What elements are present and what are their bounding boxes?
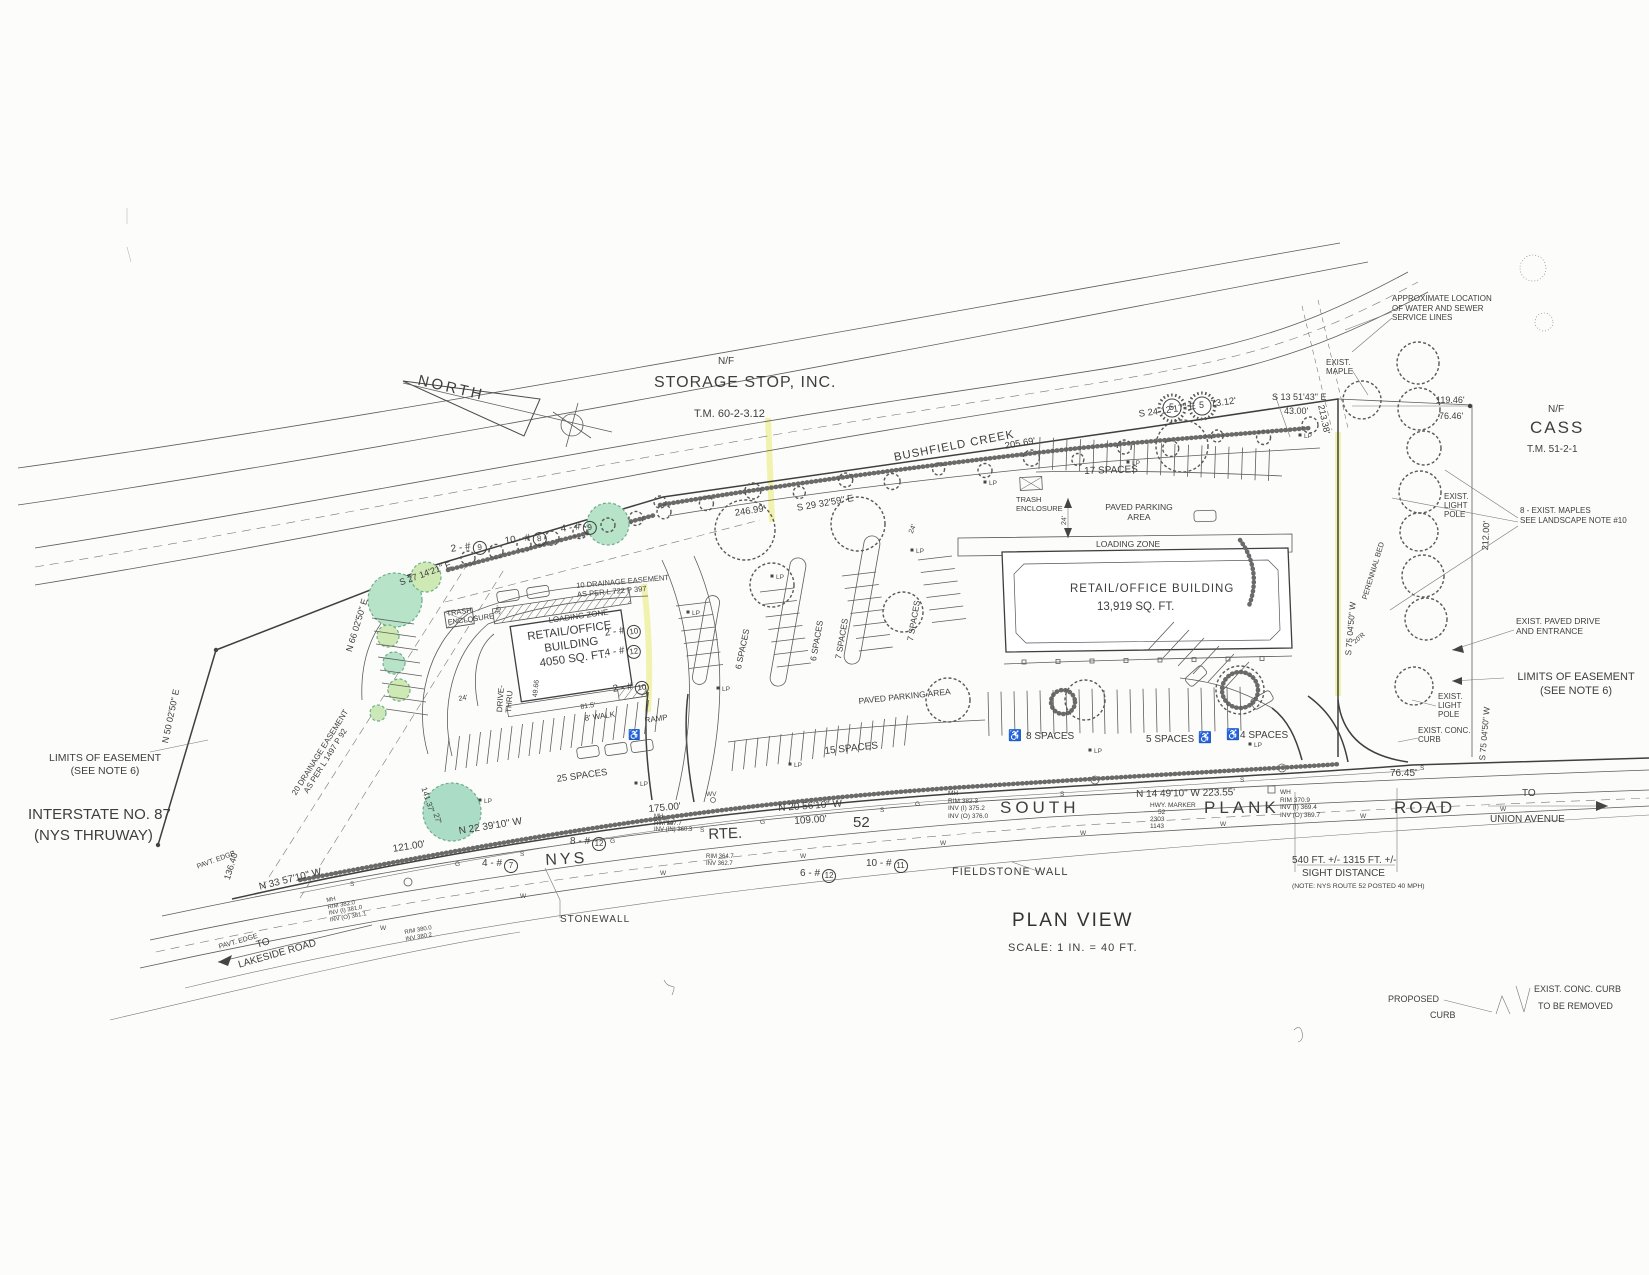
plant-num: 12 (592, 837, 606, 851)
creek-shrub (978, 464, 992, 478)
creek-shrub (1163, 441, 1179, 457)
note-line: (NOTE: NYS ROUTE 52 POSTED 40 MPH) (1292, 880, 1425, 893)
dim-7645: 76.45' (1390, 768, 1417, 779)
thruway-lines (18, 208, 1368, 505)
stonewall-label: STONEWALL (560, 914, 630, 925)
hwy-marker-note: HWY. MARKER 52 2303 1143 (1150, 802, 1196, 830)
sewer-line-marker: S (520, 851, 525, 858)
parking-stall-ticks (760, 588, 811, 667)
limits-easement-right: LIMITS OF EASEMENT (SEE NOTE 6) (1506, 670, 1646, 698)
dim-43: 43.00' (1284, 406, 1308, 416)
light-pole-icon (1089, 749, 1092, 752)
to-union-avenue: UNION AVENUE (1490, 814, 1565, 825)
plant-qty: 4 - # (560, 521, 581, 535)
boundary-shrub (657, 505, 671, 519)
car-outline (630, 739, 653, 753)
canopy-post (1124, 659, 1128, 663)
note-line: INV (IN) 360.3 (654, 827, 692, 834)
note-line: SERVICE LINES (1392, 313, 1492, 323)
water-line-marker: W (380, 925, 387, 932)
gas-line-marker: G (610, 838, 615, 845)
road-label-nys: NYS (545, 850, 588, 870)
wh-data: WH RIM 370.9 INV (I) 369.4 INV (O) 369.7 (1280, 789, 1320, 819)
plant-num: 9 (472, 540, 488, 556)
plant-num: 9 (582, 520, 598, 536)
handicap-icon-b: ♿ (1198, 731, 1212, 744)
note-line: INV (O) 369.7 (1280, 812, 1320, 820)
parking-stall-ticks (445, 698, 659, 772)
note-line: LIMITS OF EASEMENT (1506, 670, 1646, 684)
lp-marker: LP (1094, 748, 1102, 755)
note-line: MAPLE (1326, 367, 1353, 376)
note-line: MH (948, 790, 988, 798)
plant-qty: 2 - # (450, 541, 471, 555)
water-line-marker: W (1500, 806, 1507, 813)
parking-stall-ticks (1188, 687, 1241, 732)
handicap-icon-d: ♿ (628, 730, 640, 741)
wv-marker: WV (706, 791, 717, 798)
storage-stop-tm: T.M. 60-2-3.12 (694, 408, 765, 420)
note-line: EXIST. (1326, 358, 1353, 367)
note-line: EXIST. (1438, 692, 1462, 701)
car-outline (1184, 665, 1208, 688)
exist-light-pole-note-2: EXIST. LIGHT POLE (1438, 692, 1462, 719)
plant-num: 7 (504, 859, 518, 873)
note-line: AND ENTRANCE (1516, 626, 1600, 636)
plant-qty: 2 - # (604, 625, 625, 639)
road-label-road: ROAD (1394, 798, 1455, 818)
exist-paved-drive-note: EXIST. PAVED DRIVE AND ENTRANCE (1516, 616, 1600, 636)
gas-line-marker: G (760, 819, 765, 826)
note-line: LIMITS OF EASEMENT (40, 752, 170, 765)
trash-enclosure-east: TRASH ENCLOSURE (1016, 496, 1063, 513)
note-line: EXIST. CONC. (1418, 726, 1470, 735)
sight-distance-note: 540 FT. +/- 1315 FT. +/- SIGHT DISTANCE … (1292, 854, 1425, 893)
plant-callout-6-12: 6 - #12 (800, 868, 836, 883)
note-line: INV 362.7 (706, 861, 734, 868)
road-label-rte: RTE. (708, 825, 742, 843)
to-union-to: TO (1522, 788, 1536, 799)
plant-callout-8-12: 8 - #12 (570, 836, 606, 851)
plant-qty: 6 - # (800, 868, 820, 879)
lp-marker: LP (722, 686, 730, 693)
note-line: (NYS THRUWAY) (28, 825, 171, 846)
note-line: 540 FT. +/- 1315 FT. +/- (1292, 854, 1425, 867)
tree-tag-5-a: 5 (1169, 402, 1174, 412)
lp-marker: LP (484, 798, 492, 805)
parking-stall-ticks (732, 716, 908, 772)
mh-data-b: MH RIM 367.7 INV (IN) 360.3 (654, 814, 692, 834)
water-line-marker: W (940, 840, 947, 847)
exist-light-pole-note-1: EXIST. LIGHT POLE (1444, 492, 1468, 519)
light-pole-icon (911, 549, 914, 552)
storage-stop-name: STORAGE STOP, INC. (654, 374, 837, 392)
plan-view-scale: SCALE: 1 IN. = 40 FT. (1008, 942, 1138, 954)
bearing-s13: S 13 51'43" E (1272, 392, 1326, 402)
car-outline (604, 742, 627, 756)
car-outline (576, 745, 599, 759)
lp-marker: LP (776, 574, 784, 581)
gas-line-marker: G (455, 861, 460, 868)
plant-num: 10 (626, 624, 642, 640)
mh-data-middle: MH RIM 382.3 INV (I) 375.2 INV (O) 376.0 (948, 790, 988, 820)
sewer-line-marker: S (1240, 777, 1245, 784)
road-label-plank: PLANK (1204, 798, 1280, 818)
light-pole-icon (1127, 461, 1130, 464)
spaces-5: 5 SPACES (1146, 734, 1194, 745)
sewer-line-marker: S (880, 807, 885, 814)
note-line: (SEE NOTE 6) (40, 765, 170, 778)
dim-11946: 119.46' (1436, 395, 1465, 405)
plant-num: 12 (822, 869, 836, 883)
note-line: POLE (1438, 710, 1462, 719)
note-line: EXIST. (1444, 492, 1468, 501)
exist-maple-note: EXIST. MAPLE (1326, 358, 1353, 376)
note-line: 8 - EXIST. MAPLES (1520, 506, 1627, 516)
note-line: WH (1280, 789, 1320, 797)
lp-marker: LP (692, 610, 700, 617)
plant-qty: 10 - # (866, 858, 892, 869)
interstate-label: INTERSTATE NO. 87 (NYS THRUWAY) (28, 804, 171, 846)
parking-stall-ticks (842, 572, 893, 651)
note-line: 52 (1150, 809, 1196, 816)
note-line: OF WATER AND SEWER (1392, 304, 1492, 314)
fieldstone-wall-label: FIELDSTONE WALL (952, 866, 1068, 878)
plant-qty: 8 - # (570, 836, 590, 847)
site-plan-sheet: LPLPLPLPLPLPLPLPLPLPLPLPWWWWWWWWWSSSSSSS… (0, 0, 1649, 1275)
note-line: LIGHT (1438, 701, 1462, 710)
road-label-52: 52 (853, 814, 870, 831)
cass-nf: N/F (1548, 404, 1564, 415)
legend-proposed: PROPOSED (1388, 994, 1439, 1004)
lp-marker: LP (1304, 433, 1312, 440)
water-line-marker: W (1080, 830, 1087, 837)
canopy-post (1158, 658, 1162, 662)
exist-conc-curb-note: EXIST. CONC. CURB (1418, 726, 1470, 744)
plant-qty: 4 - # (604, 645, 625, 659)
creek-shrub (884, 474, 900, 490)
dim-109: 109.00' (794, 814, 827, 827)
note-line: POLE (1444, 510, 1468, 519)
plant-callout-10-11: 10 - #11 (866, 858, 908, 873)
bushfield-creek (35, 272, 1428, 585)
water-line-marker: W (520, 893, 527, 900)
plant-qty: 2 - # (612, 681, 633, 695)
plant-callout-4-7: 4 - #7 (482, 858, 518, 873)
parking-stall-ticks (918, 556, 966, 623)
sewer-line-marker: S (350, 881, 355, 888)
parking-stall-ticks (1104, 688, 1170, 734)
water-line-marker: W (660, 870, 667, 877)
note-line: LIGHT (1444, 501, 1468, 510)
water-line-marker: W (800, 853, 807, 860)
note-line: AREA (1104, 513, 1174, 523)
lp-marker: LP (640, 781, 648, 788)
gas-line-marker: G (915, 801, 920, 808)
note-line: INV (I) 375.2 (948, 805, 988, 813)
handicap-icon-c: ♿ (1226, 728, 1240, 741)
car-outline (526, 585, 549, 599)
tree-tag-5-b: 5 (1199, 400, 1204, 410)
note-line: 2303 (1150, 816, 1196, 823)
light-pole-icon (1299, 434, 1302, 437)
plant-qty: 10 - # (504, 532, 531, 546)
note-line: INV (O) 376.0 (948, 813, 988, 821)
light-pole-icon (984, 481, 987, 484)
handicap-icon-a: ♿ (1008, 729, 1022, 742)
sewer-line-marker: S (1060, 791, 1065, 798)
water-line-marker: W (1360, 813, 1367, 820)
note-line: RIM 370.9 (1280, 797, 1320, 805)
paved-parking-east: PAVED PARKING AREA (1104, 503, 1174, 522)
legend-proposed-curb: CURB (1430, 1010, 1456, 1020)
note-line: SEE LANDSCAPE NOTE #10 (1520, 516, 1627, 526)
dim-7646: 76.46' (1439, 411, 1463, 421)
site-plan-linework: LPLPLPLPLPLPLPLPLPLPLPLPWWWWWWWWWSSSSSSS… (0, 0, 1649, 1275)
plan-view-title: PLAN VIEW (1012, 910, 1133, 932)
lp-marker: LP (989, 480, 997, 487)
lp-marker: LP (794, 762, 802, 769)
light-pole-icon (1249, 743, 1252, 746)
note-line: INV (I) 369.4 (1280, 804, 1320, 812)
note-line: RIM 364.7 (706, 854, 734, 861)
maples-note: 8 - EXIST. MAPLES SEE LANDSCAPE NOTE #10 (1520, 506, 1627, 526)
east-building-area: 13,919 SQ. FT. (1097, 601, 1174, 613)
cass-tm: T.M. 51-2-1 (1527, 444, 1578, 455)
car-outline (1194, 510, 1216, 522)
entrance-curbs (646, 692, 1408, 802)
spaces-4: 4 SPACES (1240, 730, 1288, 741)
drive-thru-label: DRIVE- THRU (496, 685, 515, 713)
cass-name: CASS (1530, 418, 1584, 438)
light-pole-icon (635, 782, 638, 785)
approx-water-sewer-note: APPROXIMATE LOCATION OF WATER AND SEWER … (1392, 294, 1492, 323)
note-line: APPROXIMATE LOCATION (1392, 294, 1492, 304)
light-pole-icon (717, 687, 720, 690)
note-line: (SEE NOTE 6) (1506, 684, 1646, 698)
water-line-marker: W (1220, 821, 1227, 828)
note-line: INTERSTATE NO. 87 (28, 804, 171, 825)
canopy-post (1260, 657, 1264, 661)
note-line: ENCLOSURE (1016, 505, 1063, 514)
lp-marker: LP (916, 548, 924, 555)
loading-zone-east: LOADING ZONE (1096, 539, 1160, 549)
rim-data-b: RIM 364.7 INV 362.7 (706, 854, 734, 867)
spaces-8: 8 SPACES (1026, 731, 1074, 742)
storage-stop-nf: N/F (718, 356, 734, 367)
canopy-post (1056, 660, 1060, 664)
note-line: CURB (1418, 735, 1470, 744)
note-line: SIGHT DISTANCE (1292, 867, 1425, 880)
note-line: 1143 (1150, 823, 1196, 830)
dim-21200: 212.00' (1480, 521, 1492, 551)
plant-qty: 4 - # (482, 858, 502, 869)
legend-exist-curb: EXIST. CONC. CURB (1534, 984, 1621, 994)
parking-stall-ticks (988, 689, 1093, 736)
plant-num: 11 (894, 859, 908, 873)
light-pole-icon (479, 799, 482, 802)
legend-exist-curb-removed: TO BE REMOVED (1538, 1001, 1613, 1011)
sewer-line-marker: S (1420, 765, 1425, 772)
plant-num: 12 (626, 644, 642, 660)
dim-24-c: 24' (1061, 516, 1068, 525)
plant-num: 10 (634, 680, 650, 696)
sewer-line-marker: S (700, 827, 705, 834)
light-pole-icon (771, 575, 774, 578)
spaces-17: 17 SPACES (1084, 464, 1138, 477)
plant-num: 8 (531, 531, 547, 547)
light-pole-icon (789, 763, 792, 766)
light-pole-icon (687, 611, 690, 614)
note-line: HWY. MARKER (1150, 802, 1196, 809)
note-line: RIM 382.3 (948, 798, 988, 806)
bearing-n14: N 14 49'10" W 223.55' (1136, 787, 1235, 800)
road-label-south: SOUTH (1000, 798, 1080, 818)
note-line: EXIST. PAVED DRIVE (1516, 616, 1600, 626)
car-outline (496, 589, 519, 603)
east-building-name: RETAIL/OFFICE BUILDING (1070, 583, 1234, 595)
limits-easement-left: LIMITS OF EASEMENT (SEE NOTE 6) (40, 752, 170, 778)
lp-marker: LP (1254, 742, 1262, 749)
